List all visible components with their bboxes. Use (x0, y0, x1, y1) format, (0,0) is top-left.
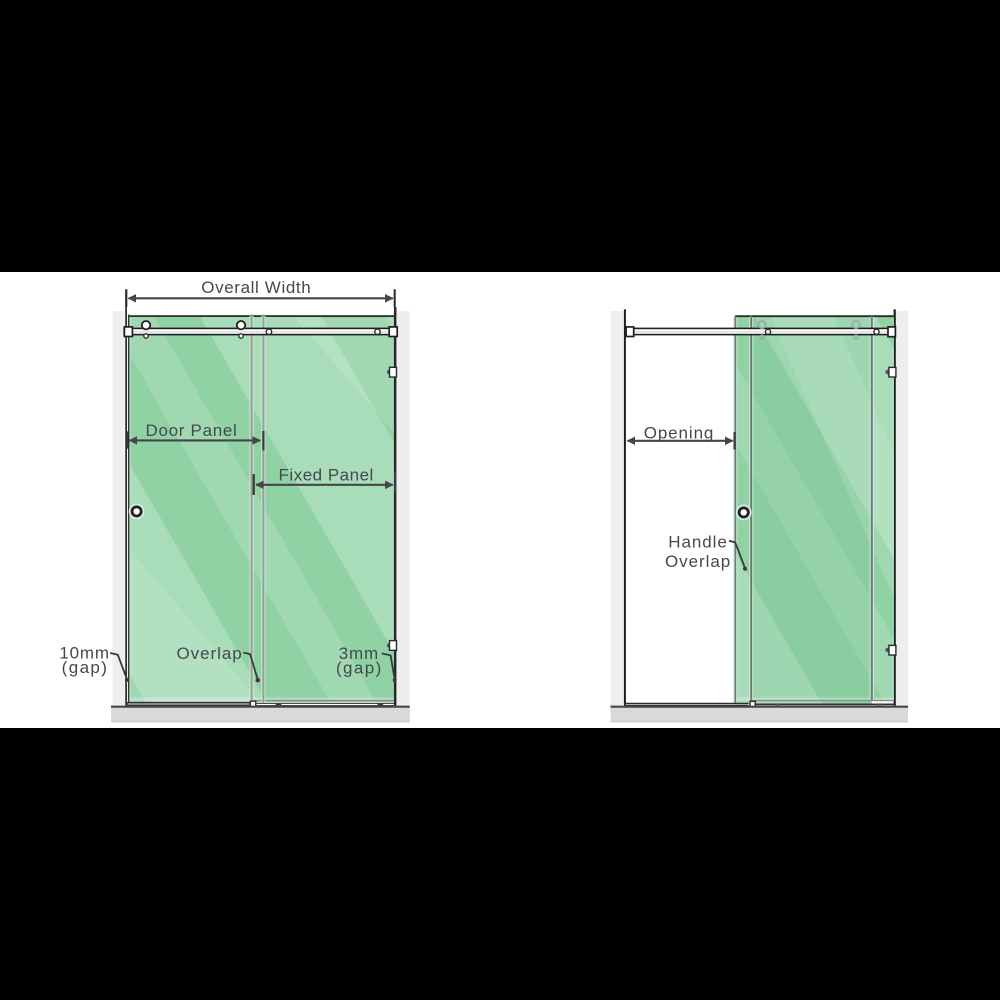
svg-text:Handle: Handle (668, 532, 728, 551)
svg-text:Overall Width: Overall Width (201, 278, 311, 297)
svg-text:(gap): (gap) (336, 659, 383, 678)
svg-text:Fixed Panel: Fixed Panel (279, 465, 374, 484)
svg-text:(gap): (gap) (62, 658, 109, 677)
svg-text:Opening: Opening (644, 423, 715, 442)
svg-text:Overlap: Overlap (177, 644, 243, 663)
svg-text:Door Panel: Door Panel (145, 421, 237, 440)
svg-text:Overlap: Overlap (665, 552, 731, 571)
